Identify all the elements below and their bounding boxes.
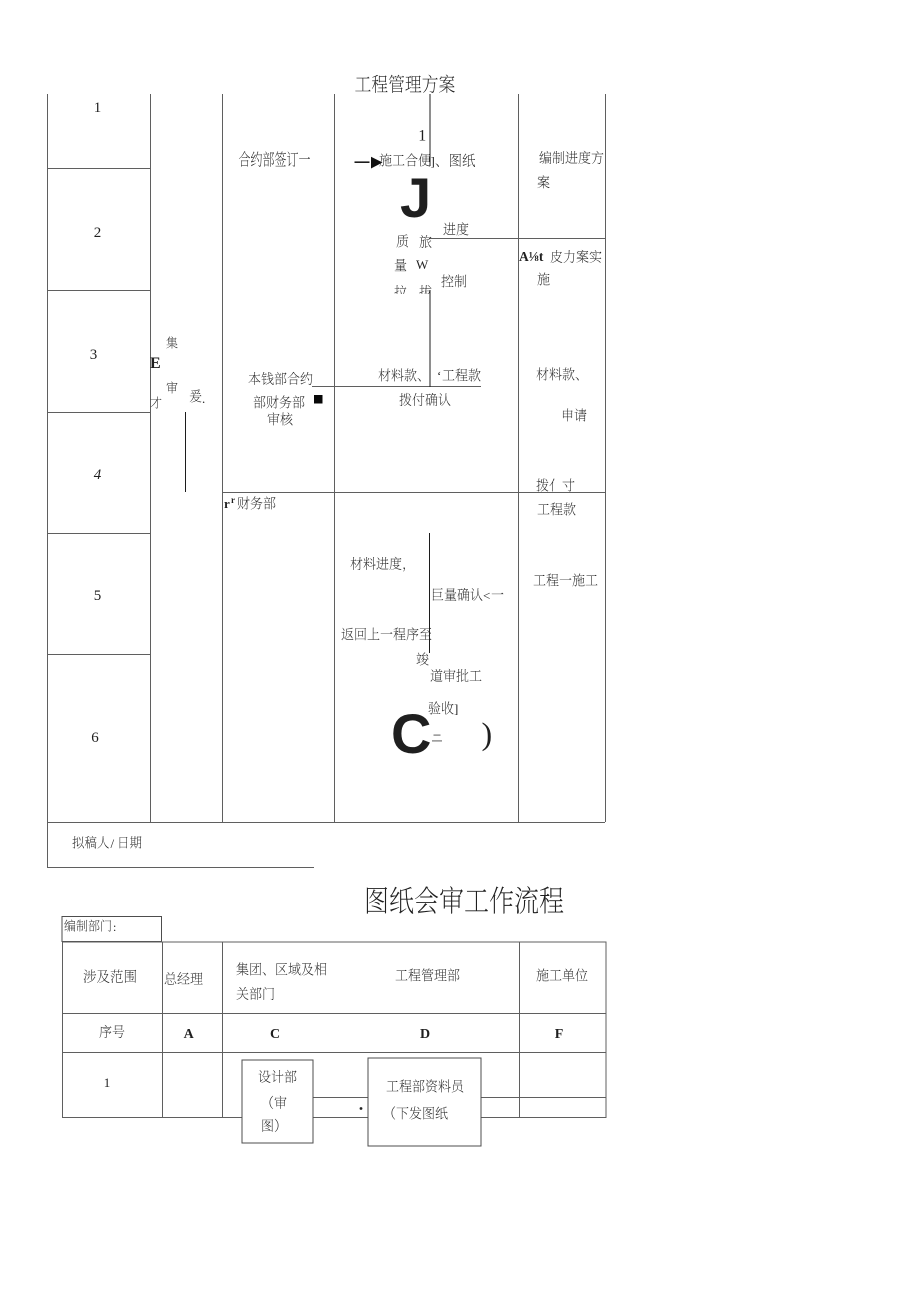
svg-text:4: 4 [94,467,102,483]
svg-text:C: C [391,702,431,765]
svg-text:D: D [420,1027,430,1042]
svg-text:1: 1 [104,1075,111,1090]
svg-text:<: < [483,588,490,603]
svg-text:r: r [224,496,230,511]
svg-text:A: A [184,1027,195,1042]
svg-text::: : [113,920,116,934]
svg-text:A⅛t: A⅛t [519,249,544,264]
svg-text:2: 2 [94,225,102,241]
svg-text:E: E [150,355,161,372]
svg-text:5: 5 [94,588,102,604]
svg-text:/: / [111,836,115,851]
svg-text:.: . [202,391,205,406]
svg-text:‘: ‘ [437,368,441,383]
svg-text:): ) [482,716,493,752]
svg-text:6: 6 [91,730,99,746]
svg-text:W: W [416,257,429,272]
svg-text:1: 1 [418,128,426,145]
svg-text:J: J [400,166,431,229]
svg-text:F: F [555,1027,564,1042]
svg-text:C: C [270,1027,280,1042]
svg-text:r: r [231,495,235,505]
svg-text:1: 1 [94,100,102,116]
svg-text:3: 3 [90,347,98,363]
svg-text:]: ] [454,701,458,716]
